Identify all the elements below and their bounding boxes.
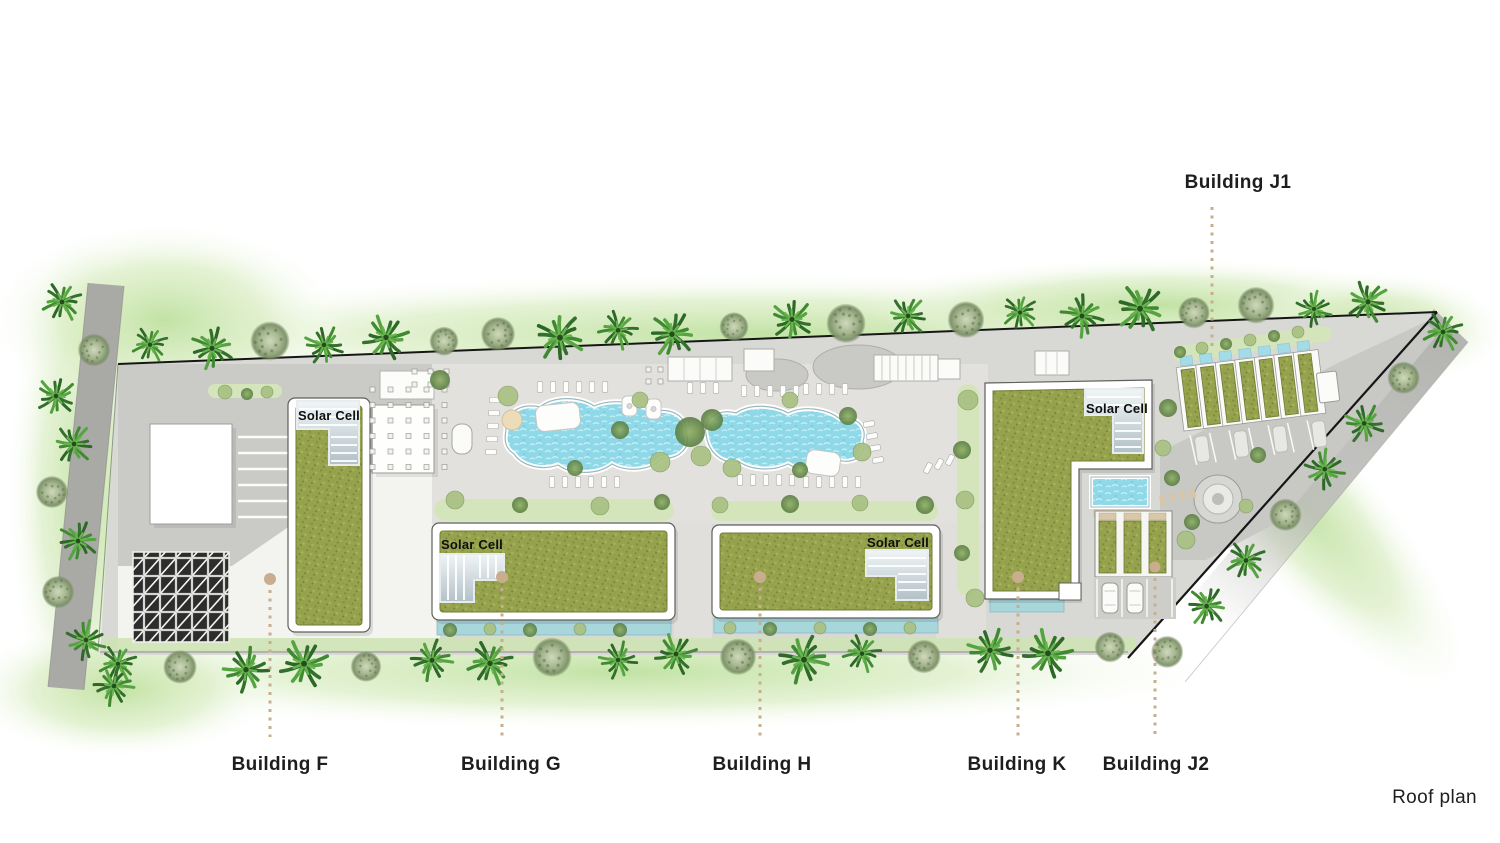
solar-cell-label-h: Solar Cell [867, 535, 929, 550]
solar-cell-label-k: Solar Cell [1086, 401, 1148, 416]
roof-plan-canvas: Solar Cell Solar Cell Solar Cell [0, 0, 1500, 843]
building-j2 [1094, 511, 1176, 619]
building-j1-label: Building J1 [1185, 172, 1292, 193]
roof-plan-label: Roof plan [1392, 787, 1477, 808]
building-g: Solar Cell [432, 523, 678, 624]
pool-bar [452, 424, 472, 454]
roundabout-fountain [1194, 475, 1242, 523]
zone-walk-gh [674, 523, 712, 641]
roof-plan-page: Solar Cell Solar Cell Solar Cell [0, 0, 1500, 843]
solar-cell-label-g: Solar Cell [441, 537, 503, 552]
building-g-label: Building G [461, 754, 561, 775]
clubhouse-north-wing [380, 371, 434, 399]
building-k-label: Building K [968, 754, 1067, 775]
building-h: Solar Cell [712, 525, 943, 622]
building-f-label: Building F [232, 754, 329, 775]
building-h-label: Building H [713, 754, 812, 775]
solar-cell-label-f: Solar Cell [298, 408, 360, 423]
building-j2-label: Building J2 [1103, 754, 1210, 775]
spa-circle [502, 410, 522, 430]
building-f: Solar Cell [288, 398, 373, 636]
trellis-pergola [133, 552, 229, 642]
parking-building [150, 424, 236, 528]
